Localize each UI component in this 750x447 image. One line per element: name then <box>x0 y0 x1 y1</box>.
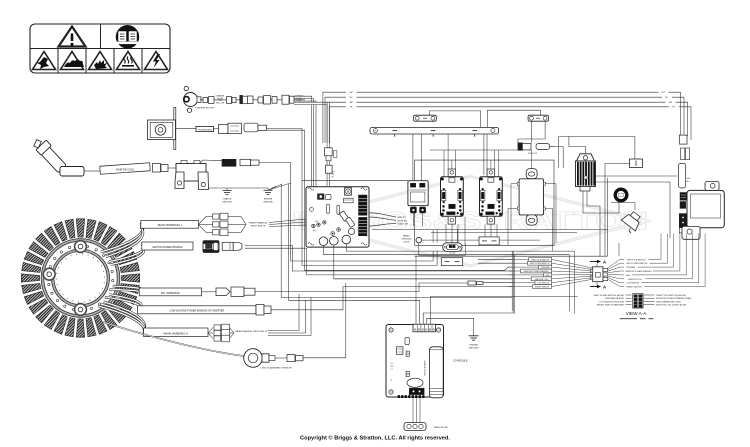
svg-text:GROUND: GROUND <box>222 202 232 204</box>
svg-text:LOS SWITCH: LOS SWITCH <box>537 283 549 285</box>
svg-text:U2: U2 <box>391 363 393 365</box>
svg-text:DC WINDING: DC WINDING <box>161 291 181 295</box>
svg-text:RED (D): RED (D) <box>398 217 407 219</box>
svg-text:THROTTLE SWITCH: THROTTLE SWITCH <box>531 259 550 261</box>
svg-text:YELLOW: YELLOW <box>216 103 224 105</box>
svg-text:IGNITION POWER WINDING: IGNITION POWER WINDING <box>152 247 183 249</box>
svg-text:Copyright © Briggs & Stratton,: Copyright © Briggs & Stratton, LLC. All … <box>300 434 450 441</box>
svg-text:PINK: PINK <box>218 100 223 102</box>
svg-text:E18: E18 <box>315 221 318 223</box>
svg-text:THROTTLE SWITCH (WHITE): THROTTLE SWITCH (WHITE) <box>656 295 686 297</box>
svg-text:MAIN WINDING I: MAIN WINDING I <box>158 223 182 227</box>
svg-text:BLUE (E): BLUE (E) <box>398 220 408 222</box>
svg-text:—: — <box>391 358 393 360</box>
svg-text:GND: GND <box>545 275 550 277</box>
svg-text:12V DC: 12V DC <box>449 252 456 254</box>
svg-text:SHUT DOWN SWITCH: SHUT DOWN SWITCH <box>530 263 550 265</box>
svg-text:GROUND: GROUND <box>402 239 412 241</box>
svg-text:100 TO 9V: 100 TO 9V <box>528 153 538 155</box>
svg-text:RESET SWITCH: RESET SWITCH <box>627 287 643 289</box>
svg-text:MAIN WINDING II: MAIN WINDING II <box>163 331 188 335</box>
svg-text:ENGINE: ENGINE <box>469 344 478 346</box>
svg-text:ENGINE: ENGINE <box>264 199 273 201</box>
svg-text:GND (GREEN/YELLOW): GND (GREEN/YELLOW) <box>656 301 681 303</box>
svg-text:SHUT DOWN SWITCH: SHUT DOWN SWITCH <box>626 263 647 265</box>
svg-text:IGNITION POWER WINDING: IGNITION POWER WINDING <box>625 271 652 273</box>
svg-text:GND: GND <box>626 275 631 277</box>
svg-text:VIEW A-A: VIEW A-A <box>626 311 648 316</box>
svg-text:J1: J1 <box>390 380 392 382</box>
svg-text:STUD: STUD <box>404 242 410 244</box>
svg-text:IGNITION COIL: IGNITION COIL <box>535 279 548 281</box>
svg-text:BLUE: BLUE <box>217 98 223 100</box>
svg-text:RESET SWITCH (BROWN): RESET SWITCH (BROWN) <box>597 305 624 307</box>
svg-text:CO MODULE: CO MODULE <box>453 360 468 363</box>
svg-text:R8: R8 <box>391 366 393 368</box>
svg-text:GROUND: GROUND <box>469 347 479 349</box>
svg-text:C1: C1 <box>391 369 393 371</box>
svg-text:REMOTE LED: REMOTE LED <box>434 427 449 429</box>
svg-text:E20: E20 <box>313 230 316 232</box>
svg-text:IGNITION POWER WINDING (RED): IGNITION POWER WINDING (RED) <box>656 298 692 300</box>
svg-text:TRIGGER: TRIGGER <box>541 267 550 269</box>
svg-text:GROUND: GROUND <box>263 202 273 204</box>
svg-text:THROTTLE SWITCH: THROTTLE SWITCH <box>627 259 647 261</box>
svg-text:RESET SWITCH: RESET SWITCH <box>535 287 550 289</box>
svg-text:LOS SWITCH (YELLOW): LOS SWITCH (YELLOW) <box>599 301 624 303</box>
svg-text:LOW-VOLTAGE POWER WINDING OF I: LOW-VOLTAGE POWER WINDING OF INVERTER <box>169 310 224 313</box>
svg-text:LOS SWITCH: LOS SWITCH <box>627 283 640 285</box>
svg-text:IGNITION COIL: IGNITION COIL <box>628 279 643 281</box>
svg-text:BLUE: BLUE <box>296 98 302 100</box>
svg-text:SHUT DOWN SWITCH (BLUE): SHUT DOWN SWITCH (BLUE) <box>594 295 625 297</box>
svg-text:IGNITION COIL (LIGHT BLUE): IGNITION COIL (LIGHT BLUE) <box>656 305 686 307</box>
svg-text:STEPPER MOTOR: STEPPER MOTOR <box>195 108 214 110</box>
svg-text:TRIGGER: TRIGGER <box>626 267 636 269</box>
svg-text:IGNITION POWER WINDING: IGNITION POWER WINDING <box>524 271 550 273</box>
